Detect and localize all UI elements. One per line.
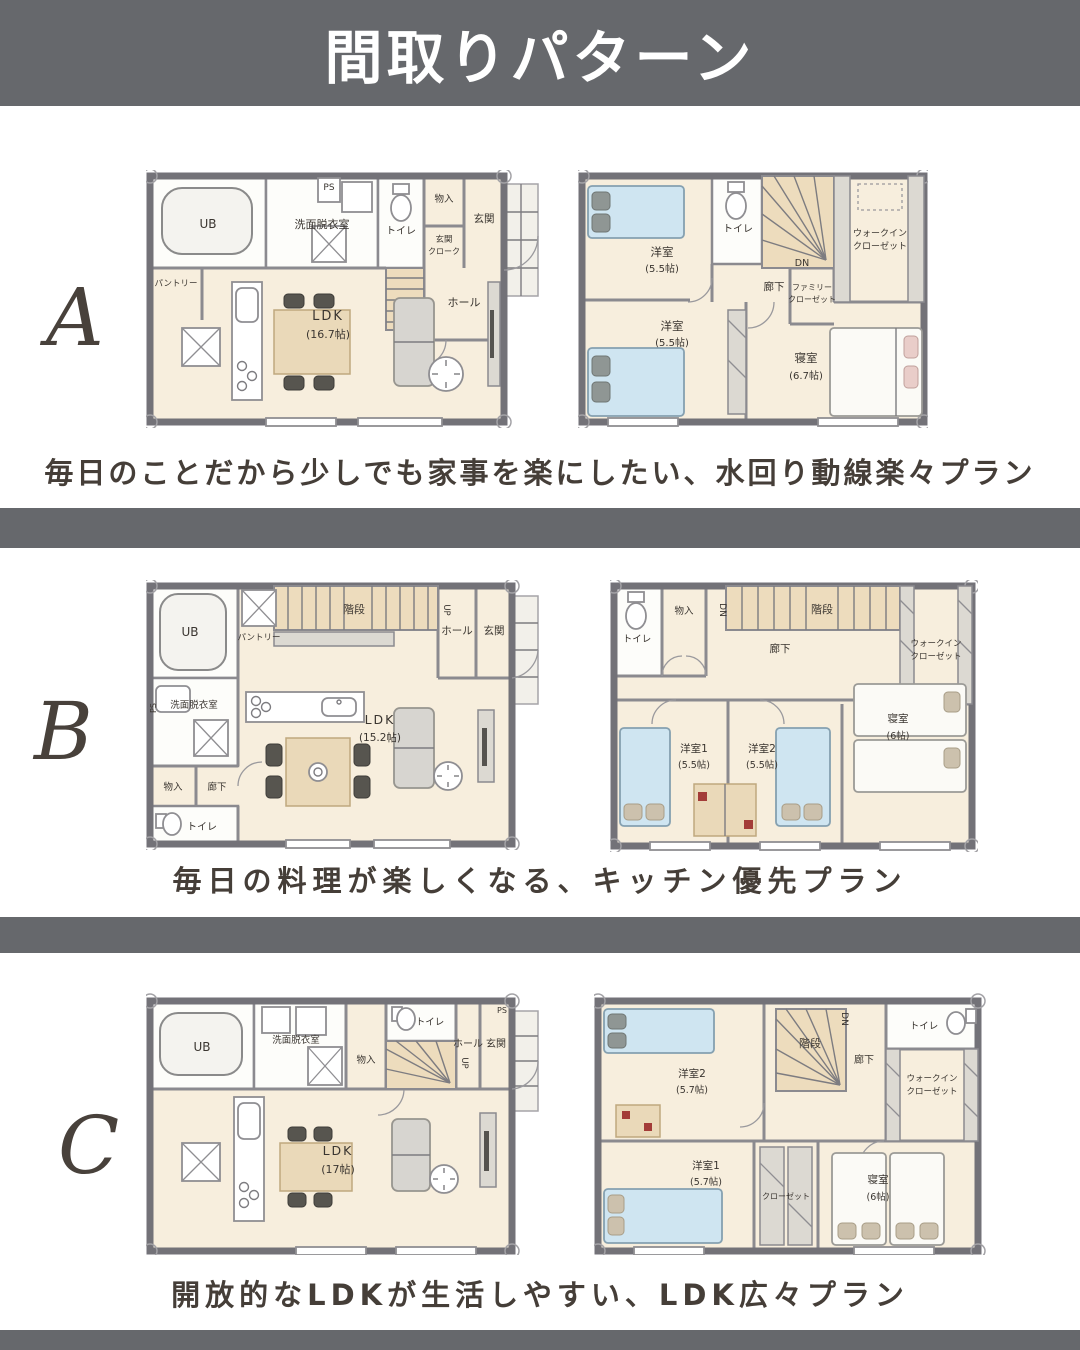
footer-band (0, 1330, 1080, 1350)
b2-label-shinshitsu: 寝室 (888, 712, 909, 725)
a2-label-shinshitsu: 寝室 (795, 351, 818, 365)
c2-label-yoshitsu1: 洋室1 (692, 1159, 720, 1172)
a2-label-yoshitsu1-size: (5.5帖) (645, 262, 679, 275)
c2-bed-yoshitsu1 (604, 1189, 722, 1243)
a1-toilet-fixture (391, 184, 411, 221)
b2-label-yoshitsu1-size: (5.5帖) (678, 759, 710, 771)
a2-label-wic1: ウォークイン (853, 228, 907, 239)
b1-label-ldk-size: (15.2帖) (359, 731, 401, 744)
a1-round-table (429, 357, 463, 391)
c1-round-table (430, 1165, 458, 1193)
a2-label-shinshitsu-size: (6.7帖) (789, 369, 823, 382)
a1-label-ub: UB (199, 217, 216, 231)
a1-label-monoire: 物入 (434, 193, 454, 205)
b2-label-wic2: クローゼット (910, 651, 961, 662)
b1-label-genkan: 玄関 (484, 624, 505, 637)
b2-label-monoire: 物入 (674, 605, 694, 617)
a2-label-yoshitsu1: 洋室 (651, 245, 674, 259)
a1-label-senmen: 洗面脱衣室 (295, 217, 350, 231)
b1-label-pantry: パントリー (238, 633, 281, 643)
b1-sofa (394, 708, 434, 788)
floorplan-b-1f: UB パントリー 階段 UP ホール 玄関 PS 洗面脱衣室 物入 廊下 トイレ… (146, 580, 542, 850)
b1-label-kaidan: 階段 (343, 602, 365, 616)
b1-label-ps: PS (149, 703, 158, 713)
floorplan-a-1f: UB 洗面脱衣室 トイレ PS 物入 玄関 クローク 玄関 ホール パントリー … (146, 170, 542, 428)
c2-label-shinshitsu: 寝室 (868, 1173, 889, 1186)
c1-label-genkan: 玄関 (486, 1037, 506, 1050)
c1-tv-board (480, 1113, 496, 1187)
b2-label-rouka: 廊下 (770, 642, 791, 655)
a2-label-family2: クローゼット (788, 294, 836, 304)
b1-label-toilet: トイレ (187, 822, 217, 833)
header-band: 間取りパターン (0, 0, 1080, 106)
a2-closet-column (728, 310, 746, 414)
b1-round-table (434, 762, 462, 790)
b2-label-shinshitsu-size: (6帖) (887, 730, 910, 742)
a2-stairs (762, 176, 834, 268)
b2-label-wic1: ウォークイン (910, 639, 961, 649)
poster-page: 間取りパターン A (0, 0, 1080, 1350)
c2-label-yoshitsu1-size: (5.7帖) (690, 1176, 722, 1188)
c2-label-shinshitsu-size: (6帖) (867, 1191, 890, 1203)
c1-label-ps: PS (497, 1006, 507, 1015)
a2-label-yoshitsu2: 洋室 (661, 319, 684, 333)
floorplan-c-2f: 洋室2 (5.7帖) 階段 DN トイレ 廊下 ウォークイン クローゼット 洋室… (594, 993, 986, 1255)
c1-label-hall: ホール (453, 1038, 483, 1050)
a1-label-cloak1: 玄関 (435, 234, 452, 245)
b1-pantry-shelf (242, 590, 276, 626)
a1-label-ps: PS (323, 183, 334, 193)
c2-label-closet: クローゼット (762, 1191, 810, 1201)
b1-label-hall: ホール (441, 625, 473, 637)
b2-label-dn: DN (717, 603, 727, 617)
divider-band-2 (0, 917, 1080, 953)
a2-label-dn: DN (795, 258, 809, 269)
c1-stairs (386, 1041, 456, 1089)
c1-label-senmen: 洗面脱衣室 (272, 1034, 320, 1046)
section-c-caption: 開放的なLDKが生活しやすい、LDK広々プラン (0, 1272, 1080, 1314)
c2-desk (616, 1105, 660, 1137)
a2-bed-2 (588, 348, 684, 416)
floorplan-a-2f: 洋室 (5.5帖) トイレ DN 廊下 ファミリー クローゼット ウォークイン … (578, 170, 928, 428)
b1-tv-board (478, 710, 494, 782)
c1-label-monoire: 物入 (356, 1054, 376, 1066)
a1-sofa (394, 298, 434, 386)
b2-toilet-fixture (626, 592, 646, 629)
a1-label-ldk-size: (16.7帖) (306, 328, 350, 341)
a2-bed-main (830, 328, 922, 416)
a1-tv-board (488, 282, 500, 386)
a2-bed-1 (588, 186, 684, 238)
a2-label-yoshitsu2-size: (5.5帖) (655, 336, 689, 349)
c2-label-yoshitsu2-size: (5.7帖) (676, 1084, 708, 1096)
b1-kitchen (246, 692, 364, 722)
section-a-caption: 毎日のことだから少しでも家事を楽にしたい、水回り動線楽々プラン (0, 450, 1080, 492)
a2-label-family1: ファミリー (792, 283, 832, 292)
floorplan-c-1f: UB 洗面脱衣室 物入 トイレ UP ホール 玄関 PS LDK (17帖) (146, 993, 542, 1255)
b2-label-toilet: トイレ (623, 634, 652, 645)
b1-label-monoire: 物入 (163, 781, 183, 793)
a2-toilet-fixture (726, 182, 746, 219)
floorplan-b-2f: トイレ 物入 DN 階段 ウォークイン クローゼット 廊下 洋室1 (5.5帖)… (610, 580, 978, 852)
c1-label-ldk-size: (17帖) (321, 1163, 355, 1176)
b1-label-rouka: 廊下 (207, 781, 226, 793)
section-c-letter: C (58, 1106, 119, 1186)
a1-label-toilet: トイレ (386, 226, 416, 237)
section-a-letter: A (46, 278, 104, 358)
b2-bed-yoshitsu2 (776, 728, 830, 826)
c2-bed-yoshitsu2 (604, 1009, 714, 1053)
a2-label-wic2: クローゼット (853, 240, 907, 252)
c2-label-toilet: トイレ (910, 1021, 939, 1032)
page-title: 間取りパターン (324, 11, 755, 95)
a1-label-pantry: パントリー (155, 279, 198, 289)
c1-label-toilet: トイレ (416, 1017, 445, 1028)
b2-label-yoshitsu2-size: (5.5帖) (746, 759, 778, 771)
c1-label-up: UP (459, 1057, 469, 1068)
c2-label-rouka: 廊下 (854, 1053, 874, 1066)
b2-desks (694, 784, 756, 836)
c2-label-yoshitsu2: 洋室2 (678, 1067, 706, 1080)
c2-label-kaidan: 階段 (799, 1036, 821, 1050)
a1-label-genkan: 玄関 (474, 212, 495, 225)
c1-label-ub: UB (193, 1040, 210, 1054)
c2-label-wic2: クローゼット (906, 1086, 957, 1097)
c1-label-ldk: LDK (323, 1143, 354, 1158)
a1-label-ldk: LDK (312, 309, 344, 324)
b1-label-ub: UB (181, 625, 198, 639)
c1-sofa (392, 1119, 430, 1191)
b1-label-up: UP (441, 604, 451, 615)
b2-label-yoshitsu1: 洋室1 (680, 742, 708, 755)
a2-label-rouka: 廊下 (764, 280, 785, 293)
b2-bed-yoshitsu1 (620, 728, 670, 826)
c2-label-dn: DN (839, 1012, 849, 1026)
b1-label-senmen: 洗面脱衣室 (170, 699, 218, 711)
a2-label-toilet: トイレ (723, 224, 753, 235)
section-b-letter: B (34, 692, 93, 772)
b1-label-ldk: LDK (365, 712, 396, 727)
c2-label-wic1: ウォークイン (906, 1074, 957, 1084)
b2-label-kaidan: 階段 (811, 602, 833, 616)
b2-label-yoshitsu2: 洋室2 (748, 742, 776, 755)
a1-label-hall: ホール (448, 296, 481, 309)
c2-stairs (776, 1009, 846, 1091)
a1-label-cloak2: クローク (428, 247, 460, 256)
section-b-caption: 毎日の料理が楽しくなる、キッチン優先プラン (0, 858, 1080, 900)
divider-band-1 (0, 508, 1080, 548)
